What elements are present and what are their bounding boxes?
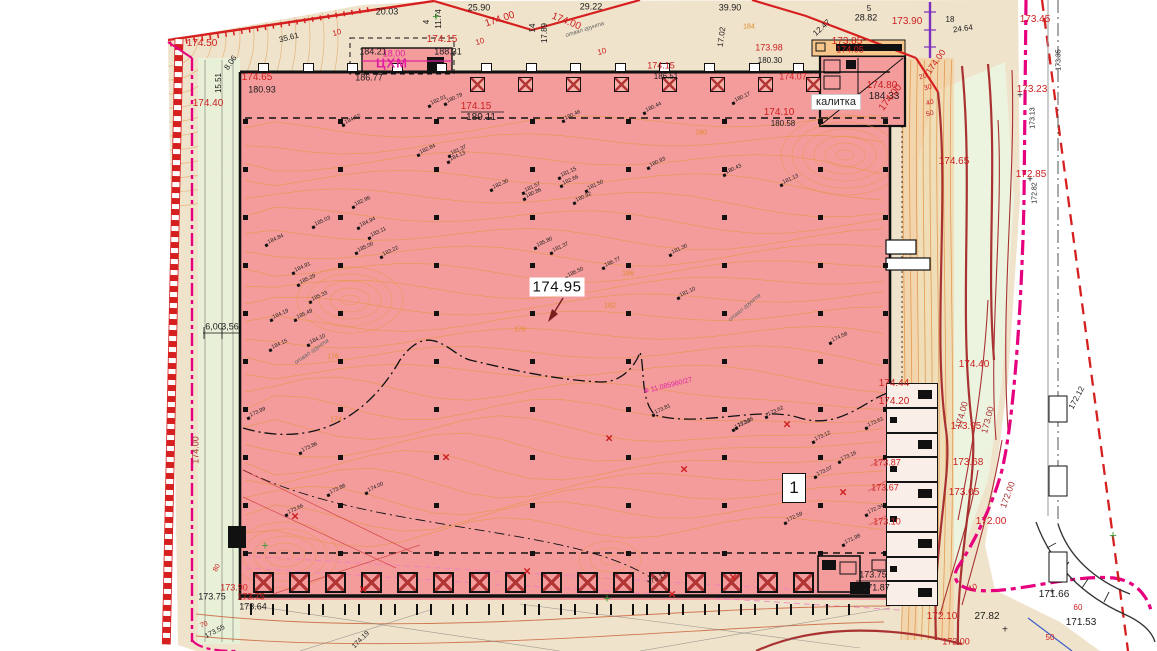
spot-elevation: 173.61	[867, 417, 885, 429]
cross-marker: ×	[839, 485, 847, 500]
design-elevation-label: 174.95	[530, 278, 585, 297]
survey-cross-green: +	[261, 538, 269, 553]
map-label: 173.75	[859, 571, 887, 580]
map-label: 180.58	[771, 120, 795, 128]
map-label: 14	[529, 24, 537, 33]
spot-elevation: 173.99	[249, 407, 267, 419]
map-label: 20.03	[376, 8, 399, 17]
map-label: 184	[743, 24, 755, 31]
spot-elevation: 172.34	[867, 504, 885, 516]
map-label: 173.68	[953, 458, 984, 468]
map-label: 27.82	[974, 612, 999, 622]
spot-elevation: 184.62	[344, 114, 362, 126]
map-label: 30	[923, 84, 932, 93]
map-label: 17.02	[717, 27, 728, 48]
map-label: 180.30	[758, 57, 782, 65]
map-label: 25.90	[468, 4, 491, 13]
map-label: 10	[475, 37, 486, 47]
map-label: 188.31	[434, 48, 462, 57]
map-label: 10	[967, 583, 978, 594]
spot-elevation: 184.84	[267, 234, 285, 246]
spot-elevation: 174.00	[367, 482, 385, 494]
cross-marker: ×	[668, 587, 676, 602]
map-label: 174.00	[192, 436, 201, 464]
survey-cross-green: +	[1109, 528, 1117, 543]
spot-elevation: 181.37	[552, 242, 570, 254]
spot-elevation: 173.86	[301, 442, 319, 454]
map-label: 172.00	[999, 481, 1017, 510]
map-label: 29.22	[580, 3, 603, 12]
map-label: 172.82	[1032, 182, 1039, 203]
spot-elevation: 181.10	[679, 287, 697, 299]
spot-elevation: 181.13	[782, 174, 800, 186]
spot-elevation: 186.77	[604, 257, 622, 269]
map-label: 174.65	[939, 157, 970, 167]
map-label: 186.51	[654, 73, 678, 81]
survey-cross: +	[1027, 175, 1033, 186]
site-plan-canvas: 25.9029.2239.9020.0335.6111.7441417.8917…	[0, 0, 1157, 651]
spot-elevation: 173.81	[654, 404, 672, 416]
map-label: 174.15	[461, 102, 492, 112]
map-label: 174.19	[351, 630, 371, 650]
spot-elevation: 182.30	[492, 179, 510, 191]
spot-elevation: 182.96	[354, 196, 372, 208]
map-label: 172.10	[927, 612, 958, 622]
map-label: 10	[332, 28, 343, 38]
spot-elevation: 172.59	[786, 512, 804, 524]
cross-marker: ×	[523, 564, 531, 579]
cross-marker: ×	[729, 570, 737, 585]
map-label: 180.93	[248, 86, 276, 95]
map-label: 6,00	[205, 323, 223, 332]
labels-layer: 25.9029.2239.9020.0335.6111.7441417.8917…	[0, 0, 1157, 651]
map-label: 173.90	[892, 17, 923, 27]
map-label: 173.64	[239, 603, 267, 612]
map-label: 50	[1046, 634, 1055, 642]
map-label: 39.90	[719, 4, 742, 13]
survey-cross-green: +	[432, 9, 440, 24]
spot-elevation: 171.98	[844, 534, 862, 546]
map-label: 173.17	[646, 571, 668, 588]
map-label: 173.13	[1030, 107, 1037, 128]
chm-block-label: ЦХМ	[376, 56, 408, 71]
spot-elevation: 173.88	[329, 484, 347, 496]
cross-marker: ×	[291, 509, 299, 524]
map-label: 174.80	[867, 81, 898, 91]
map-label: 173.98	[755, 44, 783, 53]
map-label: 172.12	[1068, 385, 1087, 410]
spot-elevation: 185.49	[296, 309, 314, 321]
map-label: 17.89	[541, 23, 549, 43]
map-label: Ф 11.085960/27	[643, 377, 693, 396]
map-label: отвал грунта	[728, 293, 763, 324]
map-label: 35.61	[278, 32, 299, 45]
map-label: 4	[423, 20, 431, 24]
map-label: 173.87	[873, 459, 901, 468]
map-label: 174.50	[187, 39, 218, 49]
spot-elevation: 182.84	[419, 144, 437, 156]
map-label: 50	[925, 110, 934, 119]
map-label: 186.77	[355, 74, 383, 83]
spot-elevation: 173.07	[816, 466, 834, 478]
spot-elevation: 173.16	[840, 451, 858, 463]
map-label: 173.35	[1056, 49, 1063, 70]
spot-elevation: 180.44	[645, 102, 663, 114]
spot-elevation: 180.46	[564, 110, 582, 122]
map-label: 18	[946, 16, 955, 24]
building-number-label: 1	[782, 473, 806, 503]
map-label: 24.64	[953, 24, 974, 35]
map-label: 70	[199, 620, 209, 629]
map-label: 174.10	[764, 108, 795, 118]
map-label: 172.00	[942, 638, 970, 647]
map-label: 173.10	[873, 518, 901, 527]
map-label: 174.65	[242, 73, 273, 83]
map-label: 173.75	[237, 593, 265, 602]
spot-elevation: 173.12	[814, 431, 832, 443]
map-label: 182	[604, 303, 616, 310]
map-label: 28.82	[855, 14, 878, 23]
map-label: 174.15	[427, 35, 458, 45]
spot-elevation: 180.92	[575, 192, 593, 204]
map-label: 174.00	[484, 11, 516, 30]
map-label: 174.20	[879, 397, 910, 407]
map-label: 174.44	[879, 379, 910, 389]
spot-elevation: 184.94	[359, 217, 377, 229]
spot-elevation: 180.93	[649, 157, 667, 169]
spot-elevation: 184.91	[294, 262, 312, 274]
cross-marker: ×	[359, 582, 367, 597]
map-label: 171.87	[862, 584, 890, 593]
spot-elevation: 173.38	[734, 419, 752, 431]
survey-cross-green: +	[603, 591, 611, 606]
cross-marker: ×	[783, 417, 791, 432]
map-label: 8.06	[223, 54, 238, 71]
map-label: 174.07	[779, 73, 807, 82]
map-label: 174.05	[836, 46, 864, 55]
spot-elevation: 185.00	[357, 242, 375, 254]
spot-elevation: 181.30	[671, 244, 689, 256]
spot-elevation: 180.17	[734, 92, 752, 104]
map-label: 189.11	[466, 113, 496, 123]
map-label: 178	[514, 327, 526, 334]
spot-elevation: 185.03	[314, 216, 332, 228]
map-label: 60	[1074, 604, 1083, 612]
spot-elevation: 184.15	[271, 339, 289, 351]
map-label: 20	[918, 73, 927, 82]
map-label: 174.40	[193, 99, 224, 109]
cross-marker: ×	[680, 462, 688, 477]
map-label: 173.05	[949, 488, 980, 498]
map-label: 12.47	[812, 18, 832, 37]
spot-elevation: 183.22	[382, 246, 400, 258]
survey-cross: +	[1049, 587, 1055, 598]
cross-marker: ×	[605, 431, 613, 446]
map-label: 173.67	[871, 484, 899, 493]
map-label: 80	[212, 563, 222, 573]
cross-marker: ×	[442, 450, 450, 465]
spot-elevation: 184.19	[272, 309, 290, 321]
spot-elevation: 180.43	[725, 164, 743, 176]
survey-cross: +	[1017, 91, 1023, 102]
map-label: 171.53	[1066, 618, 1097, 628]
map-label: 174.00	[924, 48, 947, 76]
map-label: 180	[695, 130, 707, 137]
map-label: 174.40	[959, 360, 990, 370]
map-label: 15.51	[215, 73, 223, 93]
map-label: 173.00	[980, 406, 996, 435]
map-label: 173.75	[198, 593, 226, 602]
spot-elevation: 185.29	[299, 274, 317, 286]
spot-elevation: 174.58	[831, 332, 849, 344]
map-label: 3,56	[221, 323, 239, 332]
map-label: 40	[925, 99, 934, 108]
map-label: 176	[327, 354, 339, 361]
spot-elevation: 183.11	[370, 227, 387, 239]
map-label: 10	[597, 47, 608, 57]
map-label: 174	[330, 417, 342, 424]
map-label: 186	[622, 271, 634, 278]
map-label: 172.00	[976, 517, 1007, 527]
map-label: 174.15	[647, 62, 675, 71]
map-label: 173.45	[1020, 15, 1051, 25]
survey-cross: +	[1002, 625, 1008, 636]
spot-elevation: 185.33	[311, 291, 329, 303]
gate-label: калитка	[811, 94, 861, 110]
